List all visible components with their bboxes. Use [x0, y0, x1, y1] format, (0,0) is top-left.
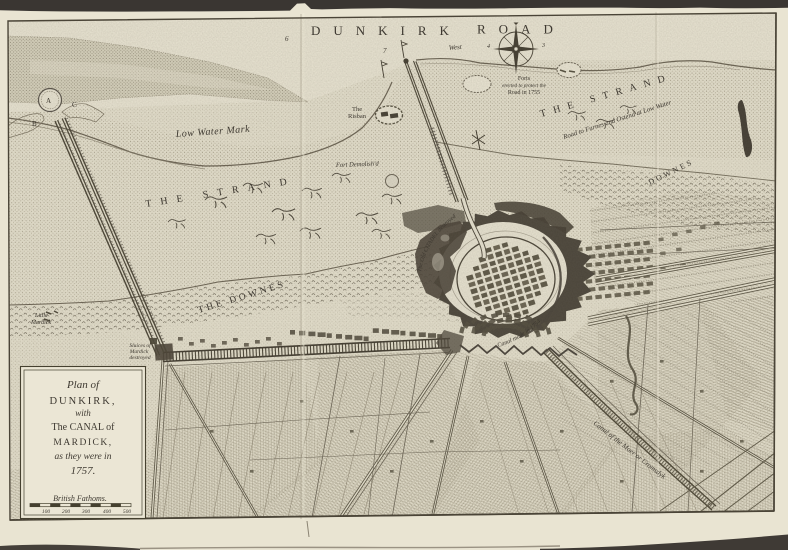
svg-text:300: 300 — [81, 509, 91, 515]
svg-text:Forts: Forts — [518, 76, 531, 82]
svg-text:3: 3 — [541, 43, 545, 49]
svg-text:West: West — [448, 43, 463, 52]
svg-text:6: 6 — [285, 35, 289, 43]
svg-text:4: 4 — [487, 43, 490, 50]
svg-text:erected to protect the: erected to protect the — [502, 83, 547, 89]
svg-text:Plan of: Plan of — [66, 379, 101, 391]
svg-text:500: 500 — [123, 509, 132, 515]
svg-text:Little: Little — [34, 313, 48, 319]
svg-text:200: 200 — [62, 509, 71, 515]
svg-text:ROAD: ROAD — [477, 22, 566, 37]
svg-text:British Fathoms.: British Fathoms. — [53, 494, 107, 503]
svg-text:as they were in: as they were in — [55, 452, 112, 462]
svg-text:Mardick: Mardick — [30, 320, 51, 326]
svg-text:Road in 1755: Road in 1755 — [508, 90, 540, 96]
svg-text:DUNKIRK,: DUNKIRK, — [49, 396, 116, 407]
svg-text:A: A — [46, 97, 51, 105]
svg-text:7: 7 — [383, 47, 387, 55]
svg-text:100: 100 — [42, 509, 51, 515]
svg-text:1757.: 1757. — [71, 465, 96, 477]
svg-text:MARDICK,: MARDICK, — [53, 438, 112, 448]
svg-text:Risban: Risban — [348, 113, 367, 120]
svg-text:DUNKIRK: DUNKIRK — [311, 23, 462, 38]
svg-text:400: 400 — [103, 508, 112, 515]
svg-text:The: The — [352, 106, 362, 113]
svg-text:destroyed: destroyed — [129, 355, 150, 361]
svg-text:The CANAL of: The CANAL of — [52, 422, 116, 433]
svg-text:C: C — [72, 101, 77, 109]
svg-text:with: with — [75, 408, 91, 418]
svg-text:Sluices of: Sluices of — [129, 342, 152, 349]
svg-text:B: B — [32, 120, 37, 128]
